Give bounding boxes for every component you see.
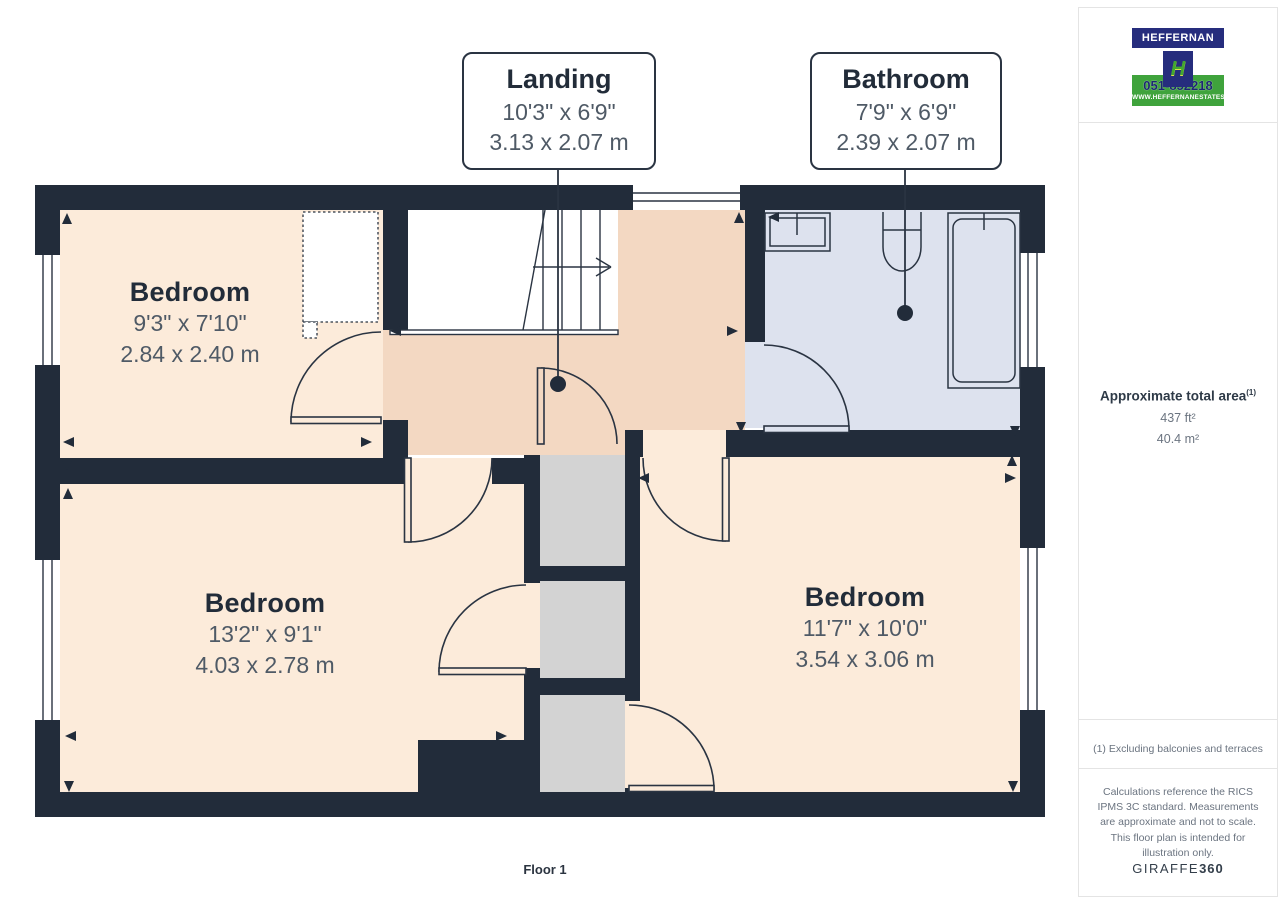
window-bedroom-3 xyxy=(1020,548,1045,710)
callout-dim-imperial: 7'9" x 6'9" xyxy=(812,97,1000,127)
callout-name: Bathroom xyxy=(812,64,1000,95)
bathroom-leader-dot xyxy=(897,305,913,321)
closet-3 xyxy=(532,695,625,792)
total-area-m: 40.4 m² xyxy=(1079,432,1277,446)
bedroom-3-floor xyxy=(640,457,1020,792)
area-footnote-ref: (1) xyxy=(1246,388,1256,397)
callout-dim-metric: 3.13 x 2.07 m xyxy=(464,127,654,157)
callout-dim-imperial: 10'3" x 6'9" xyxy=(464,97,654,127)
bathroom-floor xyxy=(765,210,1020,430)
brand-text-bold: 360 xyxy=(1199,861,1224,876)
stairwell-void xyxy=(408,210,618,332)
window-landing-top xyxy=(633,185,740,210)
window-bedroom-1 xyxy=(35,255,60,365)
info-sidebar: HEFFERNAN H 051-852218 WWW.HEFFERNANESTA… xyxy=(1078,7,1278,897)
total-area-block: Approximate total area(1) 437 ft² 40.4 m… xyxy=(1079,388,1277,446)
floor-label: Floor 1 xyxy=(480,862,610,877)
callout-dim-metric: 2.39 x 2.07 m xyxy=(812,127,1000,157)
closet-2 xyxy=(540,581,625,678)
disclaimer-text: Calculations reference the RICS IPMS 3C … xyxy=(1079,785,1277,861)
closet-1 xyxy=(540,455,625,566)
agency-monogram: H xyxy=(1163,51,1193,87)
chimney-breast xyxy=(418,740,524,792)
sidebar-divider xyxy=(1079,768,1277,769)
landing-leader-dot xyxy=(550,376,566,392)
sidebar-divider xyxy=(1079,122,1277,123)
sidebar-divider xyxy=(1079,719,1277,720)
giraffe360-brand: GIRAFFE360 xyxy=(1079,861,1277,876)
total-area-ft: 437 ft² xyxy=(1079,411,1277,425)
area-footnote: (1) Excluding balconies and terraces xyxy=(1079,730,1277,768)
brand-text: GIRAFFE xyxy=(1132,861,1199,876)
agency-logo: HEFFERNAN H 051-852218 WWW.HEFFERNANESTA… xyxy=(1132,28,1224,106)
wardrobe-dashed xyxy=(303,212,378,338)
floorplan-page: Bedroom 9'3" x 7'10" 2.84 x 2.40 m Bedro… xyxy=(0,0,1280,905)
landing-floor xyxy=(408,332,625,455)
window-bedroom-2 xyxy=(35,560,60,720)
window-bathroom xyxy=(1020,253,1045,367)
total-area-title: Approximate total area(1) xyxy=(1079,388,1277,404)
landing-callout: Landing 10'3" x 6'9" 3.13 x 2.07 m xyxy=(462,52,656,170)
agency-name: HEFFERNAN xyxy=(1132,28,1224,48)
callout-name: Landing xyxy=(464,64,654,95)
bathroom-callout: Bathroom 7'9" x 6'9" 2.39 x 2.07 m xyxy=(810,52,1002,170)
agency-website: WWW.HEFFERNANESTATES.IE xyxy=(1132,94,1224,101)
landing-floor-2 xyxy=(618,210,745,430)
